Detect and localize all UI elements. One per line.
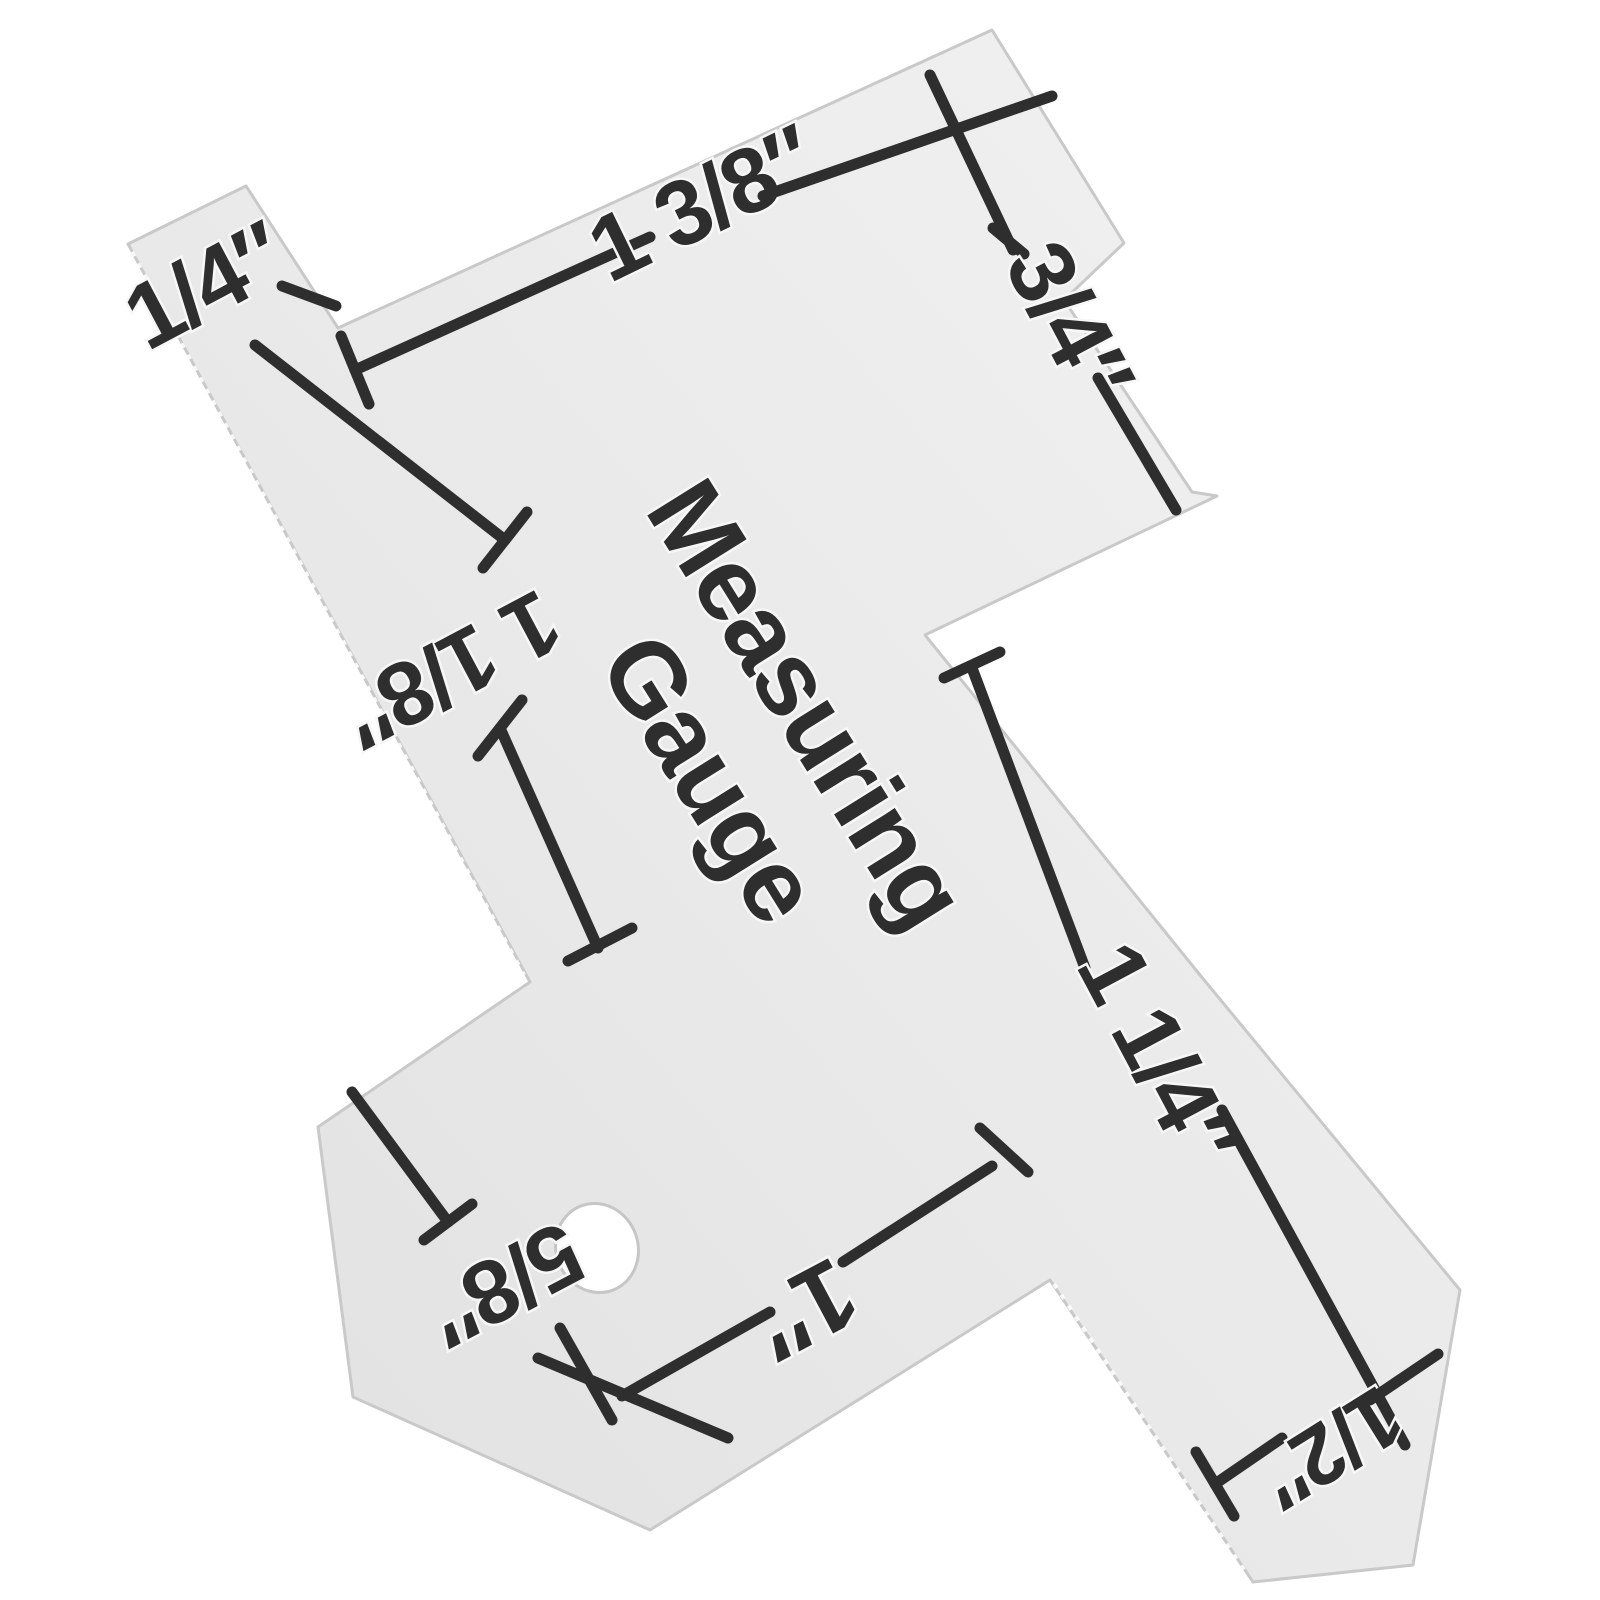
product-photo: 1/4″ 1 1/8″ 1 3/8″ 3/4″ Meas [0, 0, 1600, 1600]
measuring-gauge-illustration: 1/4″ 1 1/8″ 1 3/8″ 3/4″ Meas [0, 0, 1600, 1600]
